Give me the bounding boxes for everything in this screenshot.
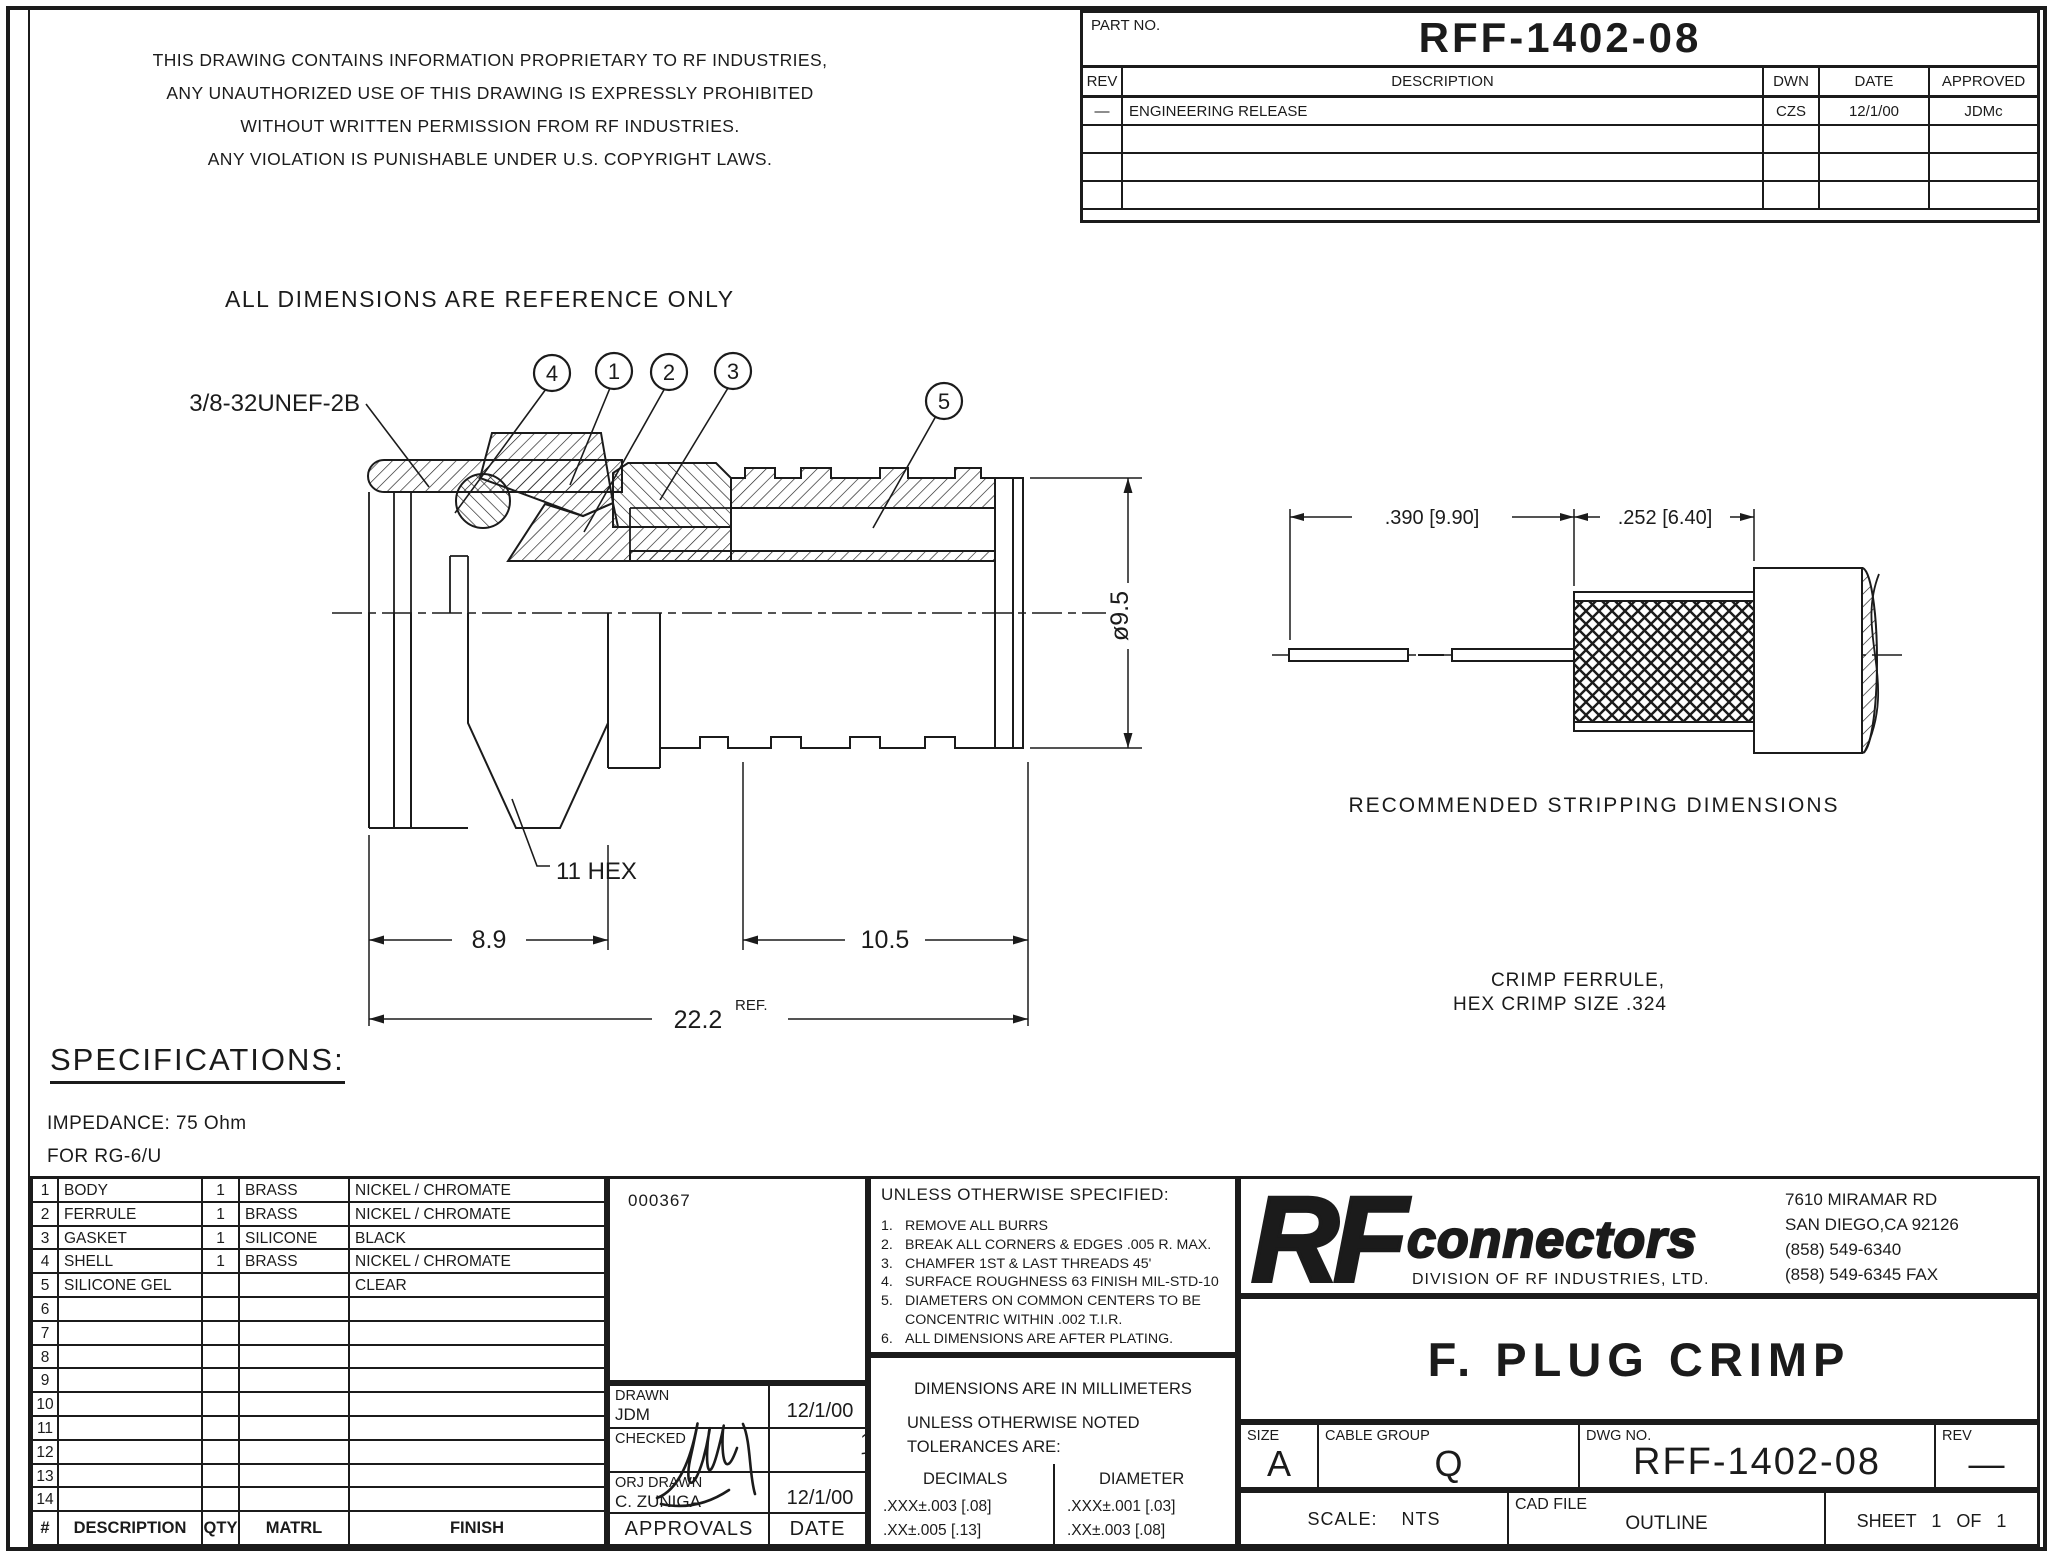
- title-block-row-2: SCALE: NTS CAD FILE OUTLINE SHEET 1 OF 1: [1238, 1490, 2040, 1547]
- cad-file-label: CAD FILE: [1515, 1496, 1587, 1514]
- notes-title: UNLESS OTHERWISE SPECIFIED:: [881, 1185, 1227, 1205]
- note-item: 6.ALL DIMENSIONS ARE AFTER PLATING.: [881, 1330, 1227, 1349]
- doc-number-box: 000367: [607, 1176, 868, 1383]
- logo-connectors-text: connectors: [1407, 1211, 1697, 1269]
- item-finish: [350, 1488, 604, 1512]
- table-row: 8: [33, 1346, 604, 1370]
- drawn-name: JDM: [615, 1405, 768, 1425]
- item-qty: [203, 1488, 240, 1512]
- item-num: 8: [33, 1346, 59, 1370]
- item-description: [59, 1322, 203, 1346]
- item-finish: [350, 1369, 604, 1393]
- dim-diameter: ø9.5: [1106, 591, 1134, 641]
- ferrule-note-line2: HEX CRIMP SIZE .324: [1453, 994, 1667, 1015]
- item-num: 11: [33, 1417, 59, 1441]
- orig-drawn-name: C. ZUNIGA: [615, 1492, 768, 1512]
- stripping-view: [1272, 568, 1908, 753]
- balloon-2-num: 2: [663, 360, 675, 385]
- drawing-title-box: F. PLUG CRIMP: [1238, 1296, 2040, 1422]
- company-block: RF connectors DIVISION OF RF INDUSTRIES,…: [1238, 1176, 2040, 1296]
- spec-impedance: IMPEDANCE: 75 Ohm: [47, 1113, 247, 1135]
- approvals-label: APPROVALS: [610, 1514, 770, 1544]
- size-value: A: [1241, 1443, 1317, 1485]
- dim-ferrule-length: 10.5: [861, 926, 910, 954]
- item-matrl: [240, 1488, 350, 1512]
- cable-jacket: [1754, 568, 1862, 753]
- item-finish: [350, 1322, 604, 1346]
- finish-header: FINISH: [350, 1512, 604, 1544]
- table-row: 1BODY1BRASSNICKEL / CHROMATE: [33, 1179, 604, 1203]
- strip-dim-left: .390 [9.90]: [1385, 507, 1480, 529]
- note-item: 4.SURFACE ROUGHNESS 63 FINISH MIL-STD-10: [881, 1273, 1227, 1292]
- dwg-no-cell: DWG NO. RFF-1402-08: [1580, 1425, 1936, 1487]
- item-num: 7: [33, 1322, 59, 1346]
- item-num: 6: [33, 1298, 59, 1322]
- drawn-date: 12/1/00: [775, 1400, 865, 1423]
- address-line: (858) 549-6345 FAX: [1785, 1262, 2031, 1287]
- decimals-tol-1: .XXX±.003 [.08]: [883, 1498, 991, 1516]
- item-num: 12: [33, 1441, 59, 1465]
- drawn-label: DRAWN: [615, 1388, 768, 1404]
- item-description: [59, 1393, 203, 1417]
- item-description: FERRULE: [59, 1203, 203, 1227]
- decimals-label: DECIMALS: [923, 1470, 1007, 1489]
- table-row: 2FERRULE1BRASSNICKEL / CHROMATE: [33, 1203, 604, 1227]
- item-num: 10: [33, 1393, 59, 1417]
- item-finish: NICKEL / CHROMATE: [350, 1250, 604, 1274]
- sheet-cell: SHEET 1 OF 1: [1826, 1493, 2037, 1544]
- note-item: 5.DIAMETERS ON COMMON CENTERS TO BE CONC…: [881, 1292, 1227, 1330]
- item-num: 4: [33, 1250, 59, 1274]
- hex-size-note: 11 HEX: [556, 858, 637, 885]
- dim-overall-length: 22.2: [674, 1006, 723, 1034]
- item-num: 2: [33, 1203, 59, 1227]
- item-matrl: [240, 1441, 350, 1465]
- table-row: 7: [33, 1322, 604, 1346]
- crimp-barrel-ribs: [660, 613, 995, 748]
- item-description: [59, 1369, 203, 1393]
- item-qty: 1: [203, 1250, 240, 1274]
- table-row: 11: [33, 1417, 604, 1441]
- drawn-row: DRAWNJDM 12/1/00: [610, 1386, 865, 1429]
- decimals-tol-2: .XX±.005 [.13]: [883, 1522, 981, 1540]
- diameter-tol-2: .XX±.003 [.08]: [1067, 1522, 1165, 1540]
- tolerances-box: DIMENSIONS ARE IN MILLIMETERS UNLESS OTH…: [868, 1355, 1238, 1547]
- approvals-footer: APPROVALS DATE: [610, 1514, 865, 1544]
- scale-cell: SCALE: NTS: [1241, 1493, 1509, 1544]
- orig-drawn-date: 12/1/00: [775, 1487, 865, 1510]
- item-matrl: BRASS: [240, 1250, 350, 1274]
- item-finish: CLEAR: [350, 1274, 604, 1298]
- specifications-title: SPECIFICATIONS:: [50, 1042, 345, 1084]
- orig-drawn-label: ORJ DRAWN: [615, 1475, 768, 1491]
- doc-number: 000367: [610, 1179, 865, 1211]
- stripping-caption: RECOMMENDED STRIPPING DIMENSIONS: [1348, 794, 1839, 817]
- item-finish: BLACK: [350, 1227, 604, 1251]
- num-header: #: [33, 1512, 59, 1544]
- parts-table-header-row: # DESCRIPTION QTY MATRL FINISH: [33, 1512, 604, 1544]
- item-qty: 1: [203, 1227, 240, 1251]
- table-row: 6: [33, 1298, 604, 1322]
- cable-group-value: Q: [1319, 1443, 1578, 1485]
- item-matrl: [240, 1322, 350, 1346]
- scale-value: NTS: [1402, 1509, 1441, 1529]
- hex-outline: [468, 613, 608, 828]
- cad-file-cell: CAD FILE OUTLINE: [1509, 1493, 1826, 1544]
- item-finish: [350, 1298, 604, 1322]
- address-line: SAN DIEGO,CA 92126: [1785, 1212, 2031, 1237]
- orig-drawn-row: ORJ DRAWNC. ZUNIGA 12/1/00: [610, 1473, 865, 1514]
- dim-overall-ref: REF.: [735, 997, 768, 1014]
- tolerance-note-2: UNLESS OTHERWISE NOTED: [907, 1414, 1140, 1433]
- item-qty: [203, 1298, 240, 1322]
- item-qty: [203, 1393, 240, 1417]
- nut-outline: [369, 613, 468, 828]
- table-row: 13: [33, 1465, 604, 1489]
- nut-wall-lines: [369, 492, 468, 613]
- balloon-3-num: 3: [727, 359, 739, 384]
- ferrule-section: [731, 468, 995, 508]
- strip-dim-right: .252 [6.40]: [1618, 507, 1713, 529]
- item-qty: [203, 1369, 240, 1393]
- item-finish: [350, 1417, 604, 1441]
- item-num: 3: [33, 1227, 59, 1251]
- balloon-4-num: 4: [546, 361, 558, 386]
- item-qty: [203, 1465, 240, 1489]
- address-line: 7610 MIRAMAR RD: [1785, 1187, 2031, 1212]
- item-description: SHELL: [59, 1250, 203, 1274]
- dwg-no-value: RFF-1402-08: [1580, 1441, 1934, 1484]
- title-block-row-1: SIZE A CABLE GROUP Q DWG NO. RFF-1402-08…: [1238, 1422, 2040, 1490]
- cable-group-label: CABLE GROUP: [1325, 1428, 1430, 1444]
- table-row: 5SILICONE GELCLEAR: [33, 1274, 604, 1298]
- matrl-header: MATRL: [240, 1512, 350, 1544]
- approvals-block: DRAWNJDM 12/1/00 CHECKED 12·1·00 ORJ DRA…: [607, 1383, 868, 1547]
- drawing-sheet: THIS DRAWING CONTAINS INFORMATION PROPRI…: [0, 0, 2053, 1557]
- item-qty: [203, 1417, 240, 1441]
- date-label: DATE: [770, 1514, 865, 1544]
- note-item: 1.REMOVE ALL BURRS: [881, 1217, 1227, 1236]
- diameter-tol-1: .XXX±.001 [.03]: [1067, 1498, 1175, 1516]
- center-conductor: [1289, 649, 1408, 661]
- rev-label: REV: [1942, 1428, 1972, 1444]
- scale-label: SCALE:: [1307, 1509, 1377, 1529]
- item-matrl: [240, 1346, 350, 1370]
- item-description: [59, 1346, 203, 1370]
- item-finish: [350, 1441, 604, 1465]
- center-conductor: [1452, 649, 1574, 661]
- item-qty: [203, 1441, 240, 1465]
- table-row: 12: [33, 1441, 604, 1465]
- drawing-title: F. PLUG CRIMP: [1428, 1332, 1851, 1387]
- item-matrl: [240, 1393, 350, 1417]
- description-header: DESCRIPTION: [59, 1512, 203, 1544]
- item-matrl: [240, 1369, 350, 1393]
- item-qty: 1: [203, 1179, 240, 1203]
- size-label: SIZE: [1247, 1428, 1279, 1444]
- item-description: [59, 1488, 203, 1512]
- crimp-sleeve-section: [630, 551, 995, 561]
- note-item: 2.BREAK ALL CORNERS & EDGES .005 R. MAX.: [881, 1236, 1227, 1255]
- item-matrl: [240, 1417, 350, 1441]
- item-qty: [203, 1322, 240, 1346]
- table-row: 4SHELL1BRASSNICKEL / CHROMATE: [33, 1250, 604, 1274]
- hex-note-leader: [512, 799, 550, 866]
- item-finish: [350, 1393, 604, 1417]
- logo-division-text: DIVISION OF RF INDUSTRIES, LTD.: [1412, 1271, 1709, 1288]
- address-line: (858) 549-6340: [1785, 1237, 2031, 1262]
- item-qty: [203, 1346, 240, 1370]
- item-num: 9: [33, 1369, 59, 1393]
- item-num: 14: [33, 1488, 59, 1512]
- dim-hex-length: 8.9: [472, 926, 507, 954]
- size-cell: SIZE A: [1241, 1425, 1319, 1487]
- diameter-label: DIAMETER: [1099, 1470, 1184, 1489]
- item-num: 13: [33, 1465, 59, 1489]
- cad-file-value: OUTLINE: [1509, 1513, 1824, 1535]
- item-matrl: BRASS: [240, 1179, 350, 1203]
- item-description: [59, 1417, 203, 1441]
- ferrule-note-line1: CRIMP FERRULE,: [1491, 970, 1665, 991]
- collar-outline: [608, 613, 660, 768]
- item-matrl: [240, 1274, 350, 1298]
- checked-label: CHECKED: [615, 1431, 768, 1447]
- item-description: SILICONE GEL: [59, 1274, 203, 1298]
- qty-header: QTY: [203, 1512, 240, 1544]
- table-row: 10: [33, 1393, 604, 1417]
- item-finish: [350, 1346, 604, 1370]
- item-finish: NICKEL / CHROMATE: [350, 1203, 604, 1227]
- cable-group-cell: CABLE GROUP Q: [1319, 1425, 1580, 1487]
- item-qty: 1: [203, 1203, 240, 1227]
- tolerance-note-3: TOLERANCES ARE:: [907, 1438, 1061, 1457]
- item-num: 1: [33, 1179, 59, 1203]
- main-section-view: [332, 433, 1106, 828]
- company-address: 7610 MIRAMAR RD SAN DIEGO,CA 92126 (858)…: [1785, 1187, 2031, 1287]
- sheet-value: 1 OF 1: [1931, 1511, 2006, 1531]
- parts-list-table: 1BODY1BRASSNICKEL / CHROMATE 2FERRULE1BR…: [30, 1176, 607, 1547]
- logo-rf-text: RF: [1251, 1181, 1411, 1295]
- item-num: 5: [33, 1274, 59, 1298]
- note-item: 3.CHAMFER 1ST & LAST THREADS 45': [881, 1255, 1227, 1274]
- rf-connectors-logo: RF connectors DIVISION OF RF INDUSTRIES,…: [1249, 1181, 1794, 1295]
- table-row: 14: [33, 1488, 604, 1512]
- rev-cell: REV —: [1936, 1425, 2037, 1487]
- item-description: GASKET: [59, 1227, 203, 1251]
- balloon-1-num: 1: [608, 359, 620, 384]
- units-note: DIMENSIONS ARE IN MILLIMETERS: [871, 1380, 1235, 1399]
- braid-weave: [1574, 601, 1754, 722]
- balloon-5-num: 5: [938, 389, 950, 414]
- item-matrl: [240, 1465, 350, 1489]
- item-matrl: BRASS: [240, 1203, 350, 1227]
- table-row: 3GASKET1SILICONEBLACK: [33, 1227, 604, 1251]
- item-matrl: SILICONE: [240, 1227, 350, 1251]
- item-description: [59, 1298, 203, 1322]
- table-row: 9: [33, 1369, 604, 1393]
- item-description: BODY: [59, 1179, 203, 1203]
- general-notes-box: UNLESS OTHERWISE SPECIFIED: 1.REMOVE ALL…: [868, 1176, 1238, 1355]
- item-matrl: [240, 1298, 350, 1322]
- item-description: [59, 1441, 203, 1465]
- item-description: [59, 1465, 203, 1489]
- item-qty: [203, 1274, 240, 1298]
- sheet-label: SHEET: [1857, 1511, 1917, 1531]
- item-finish: NICKEL / CHROMATE: [350, 1179, 604, 1203]
- rev-value: —: [1936, 1443, 2037, 1485]
- checked-row: CHECKED 12·1·00: [610, 1429, 865, 1473]
- spec-cable: FOR RG-6/U: [47, 1146, 162, 1168]
- tolerance-column-divider: [1053, 1464, 1055, 1544]
- dimension-text-masks: [452, 583, 1144, 1032]
- item-finish: [350, 1465, 604, 1489]
- thread-spec-label: 3/8-32UNEF-2B: [189, 390, 360, 417]
